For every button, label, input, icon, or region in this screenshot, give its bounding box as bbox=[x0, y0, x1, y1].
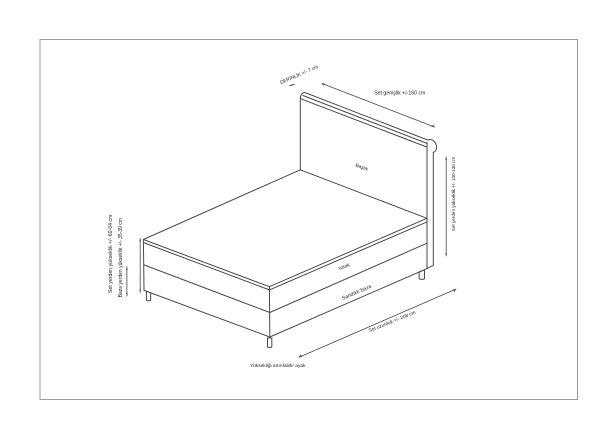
svg-text:Set yerden yükseklik +/- 130-1: Set yerden yükseklik +/- 130-135 cm bbox=[451, 157, 456, 232]
svg-text:Set yerden yükseklik +/- 60-64: Set yerden yükseklik +/- 60-64 cm bbox=[108, 215, 114, 293]
svg-text:Baza yerden yükseklik +/- 35-3: Baza yerden yükseklik +/- 35-39 cm bbox=[118, 218, 124, 297]
svg-text:Set genişlik +/-160 cm: Set genişlik +/-160 cm bbox=[374, 90, 425, 96]
svg-text:Yüksekliği artırılabilir ayak: Yüksekliği artırılabilir ayak bbox=[250, 363, 306, 369]
